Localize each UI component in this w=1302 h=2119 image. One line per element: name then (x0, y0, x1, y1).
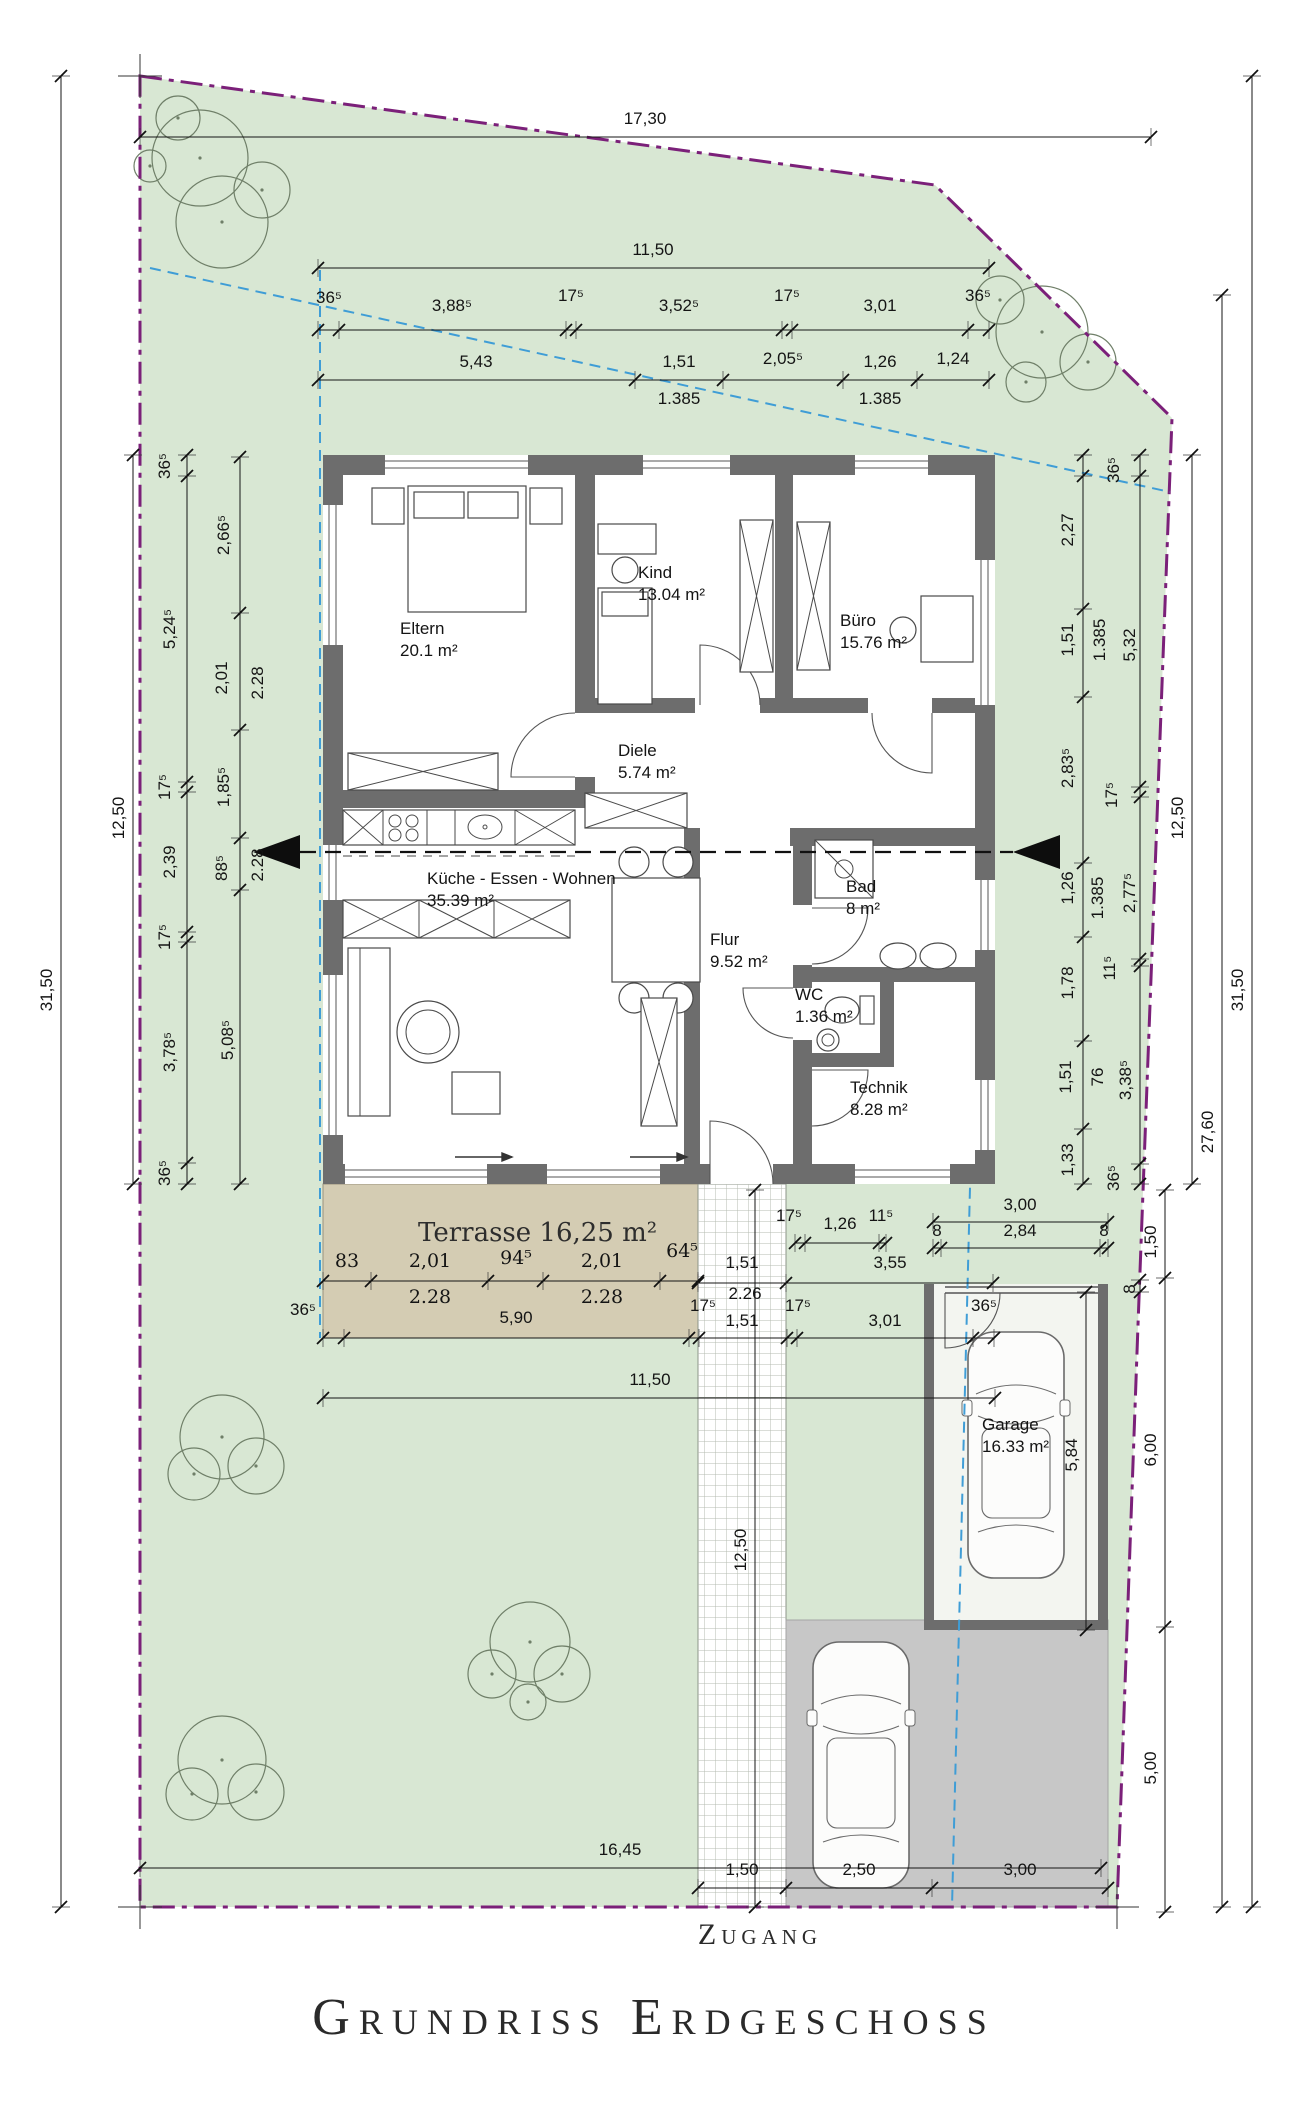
floor-plan-canvas (0, 0, 1302, 2119)
floor-plan-page: Terrasse 16,25 m² Zugang Grundriss Erdge… (0, 0, 1302, 2119)
walkway (698, 1184, 786, 1907)
car-in-garage (962, 1332, 1070, 1578)
car-on-parking (807, 1642, 915, 1888)
terrace (323, 1184, 698, 1338)
